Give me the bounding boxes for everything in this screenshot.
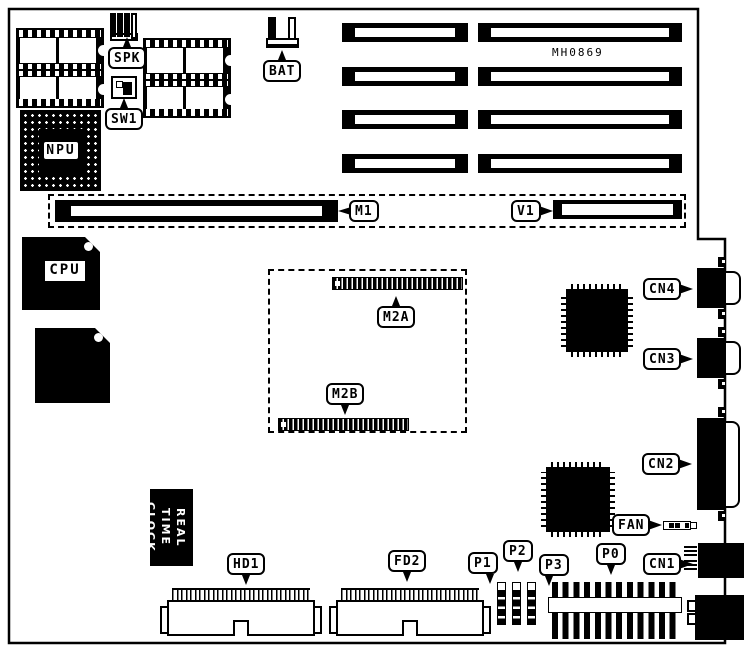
- edge-tab: [718, 327, 726, 337]
- speaker-pin: [110, 13, 116, 37]
- fan-pin: [675, 523, 680, 528]
- fan-pin: [669, 523, 674, 528]
- qfp-leads: [571, 352, 623, 357]
- expansion-slot: [478, 110, 682, 129]
- edge-tab: [718, 379, 726, 389]
- qfp-chip-upper: [566, 289, 628, 352]
- socket-notch: [98, 84, 109, 95]
- qfp-chip-lower: [546, 467, 610, 532]
- m2b-header: [278, 418, 409, 431]
- pin-row-double: [146, 74, 228, 86]
- fan-pin: [685, 523, 689, 528]
- jumper-p1: [497, 582, 506, 625]
- label-spk-text: SPK: [114, 51, 140, 66]
- fan-connector: [663, 521, 691, 530]
- part-number-text: MH0869: [552, 46, 604, 59]
- label-fan: FAN: [612, 514, 650, 536]
- label-cn1-text: CN1: [649, 557, 675, 572]
- label-cn1: CN1: [643, 553, 681, 575]
- qfp-leads: [551, 532, 605, 537]
- label-cn3: CN3: [643, 348, 681, 370]
- dip-chip: [20, 38, 56, 63]
- pin-row: [19, 99, 101, 106]
- m2-zone: [268, 269, 467, 433]
- cn2-port-exterior: [724, 421, 740, 508]
- expansion-slot: [478, 154, 682, 173]
- dip-switch-sw1: [111, 76, 137, 99]
- expansion-slot: [342, 23, 468, 42]
- battery-base: [266, 38, 299, 48]
- cn1-port: [698, 543, 744, 578]
- din-tab: [687, 613, 697, 625]
- pin-row: [19, 30, 101, 37]
- label-spk: SPK: [108, 47, 146, 69]
- speaker-pin: [117, 13, 123, 37]
- slot-stripe: [355, 115, 455, 124]
- v1-slot: [553, 200, 682, 219]
- speaker-pin: [124, 13, 130, 37]
- cn1-pin-tab: [684, 546, 697, 557]
- label-sw1: SW1: [105, 108, 143, 130]
- m2a-header: [332, 277, 463, 290]
- label-m2b-text: M2B: [332, 387, 358, 402]
- edge-tab: [718, 309, 726, 319]
- label-p3: P3: [539, 554, 569, 576]
- companion-chip: [35, 328, 110, 403]
- switch-cell: [116, 81, 123, 88]
- qfp-leads: [561, 294, 566, 347]
- label-hd1: HD1: [227, 553, 265, 575]
- label-npu-text: NPU: [46, 143, 75, 158]
- motherboard-diagram: SPK SW1 NPU BAT MH0869 M1 V1: [0, 0, 744, 651]
- switch-slider: [123, 82, 132, 95]
- slot-stripe: [491, 72, 669, 81]
- label-m2a: M2A: [377, 306, 415, 328]
- label-p2-text: P2: [509, 544, 527, 559]
- slot-stripe: [355, 159, 455, 168]
- jumper-p3: [527, 582, 536, 625]
- memory-dip-group-1: [16, 28, 104, 108]
- m1-slot: [55, 200, 338, 222]
- slot-stripe: [491, 115, 669, 124]
- fan-end: [690, 522, 697, 529]
- label-p1-text: P1: [474, 556, 492, 571]
- label-fd2: FD2: [388, 550, 426, 572]
- slot-stripe: [71, 206, 322, 216]
- edge-tab: [718, 511, 726, 521]
- cn4-port: [697, 268, 726, 308]
- expansion-slot: [342, 67, 468, 86]
- label-cn4-text: CN4: [649, 282, 675, 297]
- label-v1-text: V1: [517, 204, 535, 219]
- socket-notch: [225, 94, 236, 105]
- dip-chip: [186, 48, 223, 73]
- din-tab: [687, 600, 697, 612]
- label-p1: P1: [468, 552, 498, 574]
- qfp-leads: [541, 472, 546, 527]
- memory-dip-group-2: [143, 38, 231, 118]
- cn2-port: [697, 418, 726, 510]
- edge-tab: [718, 407, 726, 417]
- connector-key-notch: [402, 620, 418, 636]
- expansion-slot: [478, 23, 682, 42]
- edge-tab: [718, 257, 726, 267]
- slot-stripe: [355, 72, 455, 81]
- label-m1-text: M1: [355, 204, 373, 219]
- label-cpu: CPU: [45, 261, 85, 281]
- label-cn4: CN4: [643, 278, 681, 300]
- label-v1: V1: [511, 200, 541, 222]
- label-m2a-text: M2A: [383, 310, 409, 325]
- expansion-slot: [478, 67, 682, 86]
- pin-row: [146, 40, 228, 47]
- battery-connector: [266, 17, 299, 48]
- connector-key-notch: [233, 620, 249, 636]
- socket-notch: [225, 55, 236, 66]
- dip-chip: [59, 38, 96, 63]
- cn3-port: [697, 338, 726, 378]
- pin-row: [146, 109, 228, 116]
- rtc-text-line1: REAL TIME: [158, 494, 188, 561]
- label-fan-text: FAN: [618, 518, 644, 533]
- p0-power-connector: [552, 582, 679, 639]
- label-p2: P2: [503, 540, 533, 562]
- label-cpu-text: CPU: [49, 262, 80, 278]
- label-m2b: M2B: [326, 383, 364, 405]
- label-cn3-text: CN3: [649, 352, 675, 367]
- cn4-port-exterior: [724, 271, 741, 305]
- chip-row: [16, 38, 104, 63]
- rtc-text-line2: CLOCK: [143, 494, 158, 561]
- cn3-port-exterior: [724, 341, 741, 375]
- slot-stripe: [491, 159, 669, 168]
- slot-stripe: [562, 204, 673, 215]
- label-p3-text: P3: [545, 558, 563, 573]
- qfp-leads: [628, 294, 633, 347]
- slot-stripe: [491, 28, 669, 37]
- label-cn2: CN2: [642, 453, 680, 475]
- board-part-number: MH0869: [552, 46, 604, 59]
- dip-chip: [147, 48, 183, 73]
- speaker-pin: [131, 13, 137, 39]
- label-p0: P0: [596, 543, 626, 565]
- qfp-leads: [551, 462, 605, 467]
- chip-row: [143, 48, 231, 73]
- label-bat-text: BAT: [269, 64, 295, 79]
- slot-stripe: [355, 28, 455, 37]
- jumper-p2: [512, 582, 521, 625]
- qfp-leads: [571, 284, 623, 289]
- expansion-slot: [342, 154, 468, 173]
- label-sw1-text: SW1: [111, 112, 137, 127]
- din-port: [695, 595, 744, 640]
- label-cn2-text: CN2: [648, 457, 674, 472]
- label-p0-text: P0: [602, 547, 620, 562]
- expansion-slot: [342, 110, 468, 129]
- pin-row-double: [19, 64, 101, 76]
- label-hd1-text: HD1: [233, 557, 259, 572]
- label-bat: BAT: [263, 60, 301, 82]
- label-m1: M1: [349, 200, 379, 222]
- real-time-clock-module: REAL TIME CLOCK: [150, 489, 193, 566]
- fd2-connector: [329, 588, 491, 636]
- label-fd2-text: FD2: [394, 554, 420, 569]
- hd1-connector: [160, 588, 322, 636]
- label-npu: NPU: [42, 140, 80, 161]
- p0-housing-band: [548, 597, 682, 613]
